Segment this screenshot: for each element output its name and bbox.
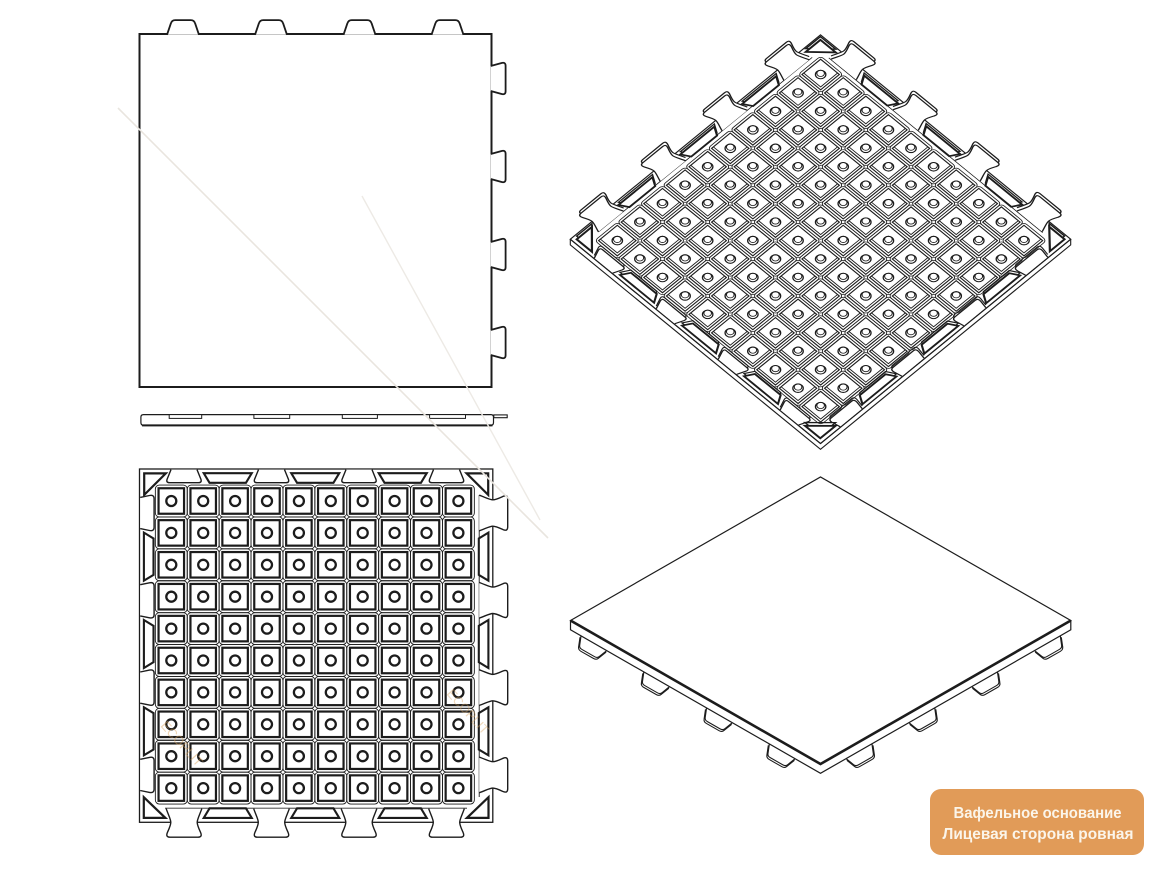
svg-text:Вафельное основание: Вафельное основание [954, 805, 1122, 822]
svg-text:Лицевая сторона ровная: Лицевая сторона ровная [943, 826, 1134, 843]
